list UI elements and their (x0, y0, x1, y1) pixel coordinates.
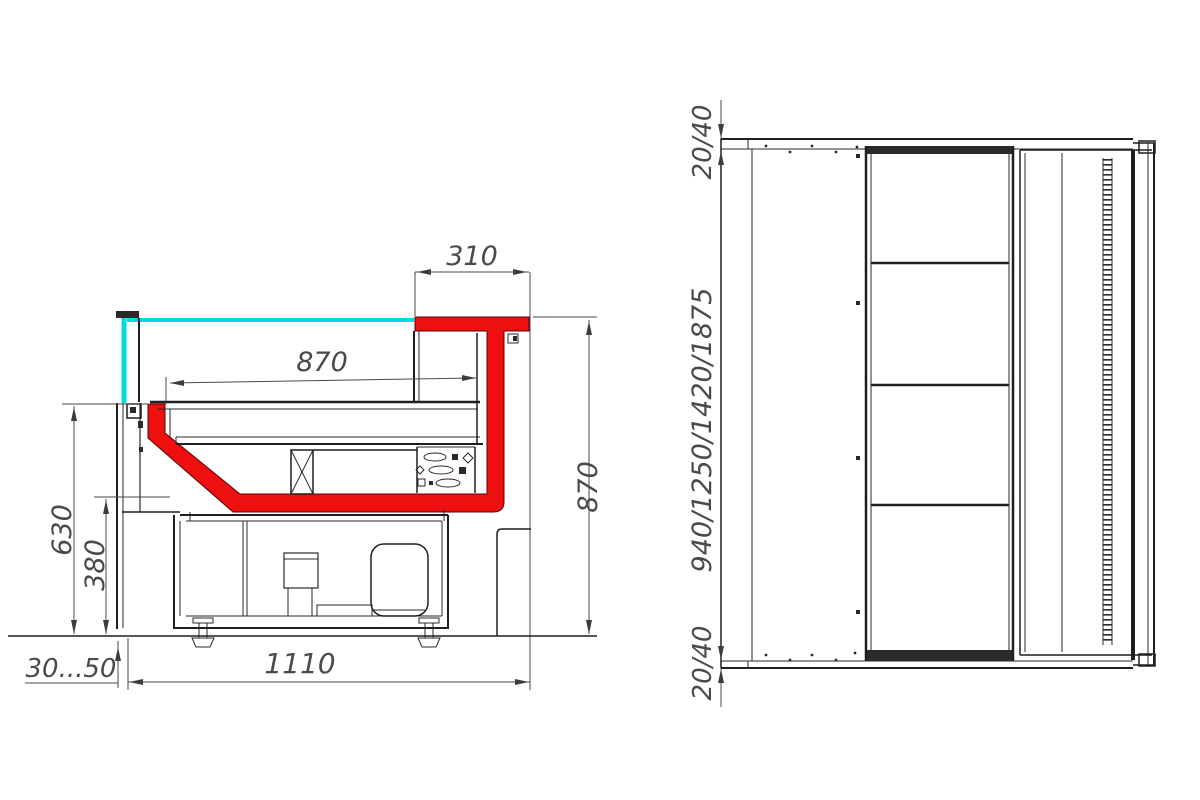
dim-length-options: 940/1250/1420/1875 (687, 288, 724, 660)
corner-bumper-bottom (1139, 654, 1155, 666)
adjustable-feet (192, 618, 440, 647)
foot-left (192, 618, 214, 647)
dim-end-overhang-bottom-20-40: 20/40 (688, 626, 724, 701)
plan-bottom-cap (721, 661, 1133, 668)
right-step-panel (497, 529, 531, 636)
dim-feet-range-30-50: 30...50 (25, 641, 121, 688)
dim-deck-length-870: 870 (166, 347, 476, 404)
dim-label-870-horizontal: 870 (296, 347, 348, 378)
top-plan-view: 20/40 940/1250/1420/1875 20/40 (687, 100, 1155, 707)
dim-depth-1110: 1110 (128, 647, 530, 685)
machine-compartment (174, 509, 448, 629)
dim-label-30-50: 30...50 (26, 654, 117, 684)
dim-label-380: 380 (80, 539, 111, 591)
technical-drawing-canvas: 310 870 870 630 380 (0, 0, 1200, 800)
compressor (371, 544, 428, 616)
dim-label-310: 310 (446, 241, 498, 272)
side-section-view: 310 870 870 630 380 (8, 241, 604, 690)
glass-front (116, 311, 414, 403)
ventilation-grille (416, 447, 475, 493)
relay-box (284, 553, 318, 588)
plan-front-assembly (1020, 141, 1155, 666)
dim-back-height-630: 630 (47, 404, 150, 634)
glass-top-cap (116, 311, 139, 318)
dim-label-20-40-top: 20/40 (688, 105, 718, 180)
plan-shelf-column (865, 146, 1014, 661)
evaporator-block (291, 450, 417, 494)
dim-label-1110: 1110 (264, 647, 335, 680)
display-case-drawing: 310 870 870 630 380 (0, 0, 1200, 800)
condensate-tray (317, 605, 372, 616)
plan-counter-area (752, 145, 860, 662)
dim-label-20-40-bottom: 20/40 (688, 626, 718, 701)
dim-label-length-options: 940/1250/1420/1875 (687, 288, 718, 573)
dim-end-overhang-top-20-40: 20/40 (688, 105, 724, 180)
dim-top-overhang-310: 310 (415, 241, 529, 316)
foot-right (418, 618, 440, 647)
dim-well-height-380: 380 (80, 497, 170, 634)
dim-label-630: 630 (47, 504, 78, 556)
dim-label-870-vertical: 870 (573, 461, 604, 513)
dim-overall-height-870: 870 (533, 317, 604, 634)
